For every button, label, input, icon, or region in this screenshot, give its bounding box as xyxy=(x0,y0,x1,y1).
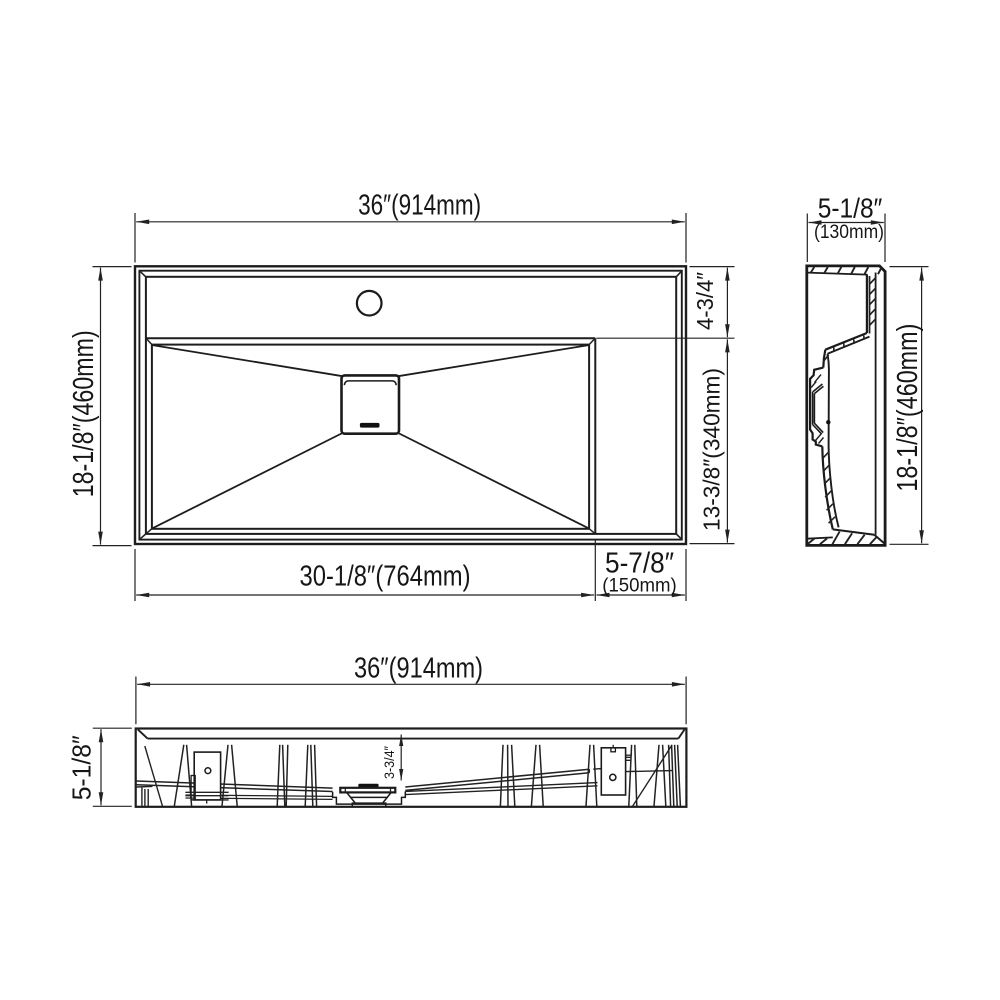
svg-text:18-1/8″(460mm): 18-1/8″(460mm) xyxy=(892,324,924,492)
svg-text:36″(914mm): 36″(914mm) xyxy=(358,189,481,221)
svg-text:(130mm): (130mm) xyxy=(814,221,884,243)
svg-text:5-1/8″: 5-1/8″ xyxy=(66,735,96,800)
svg-text:3-3/4″: 3-3/4″ xyxy=(382,746,397,779)
svg-text:5-1/8″: 5-1/8″ xyxy=(818,193,883,224)
svg-text:(150mm): (150mm) xyxy=(602,575,677,597)
svg-text:30-1/8″(764mm): 30-1/8″(764mm) xyxy=(300,560,471,592)
svg-text:4-3/4″: 4-3/4″ xyxy=(692,272,718,330)
svg-text:36″(914mm): 36″(914mm) xyxy=(354,653,483,685)
svg-text:13-3/8″(340mm): 13-3/8″(340mm) xyxy=(699,368,725,531)
svg-text:18-1/8″(460mm): 18-1/8″(460mm) xyxy=(68,330,100,497)
